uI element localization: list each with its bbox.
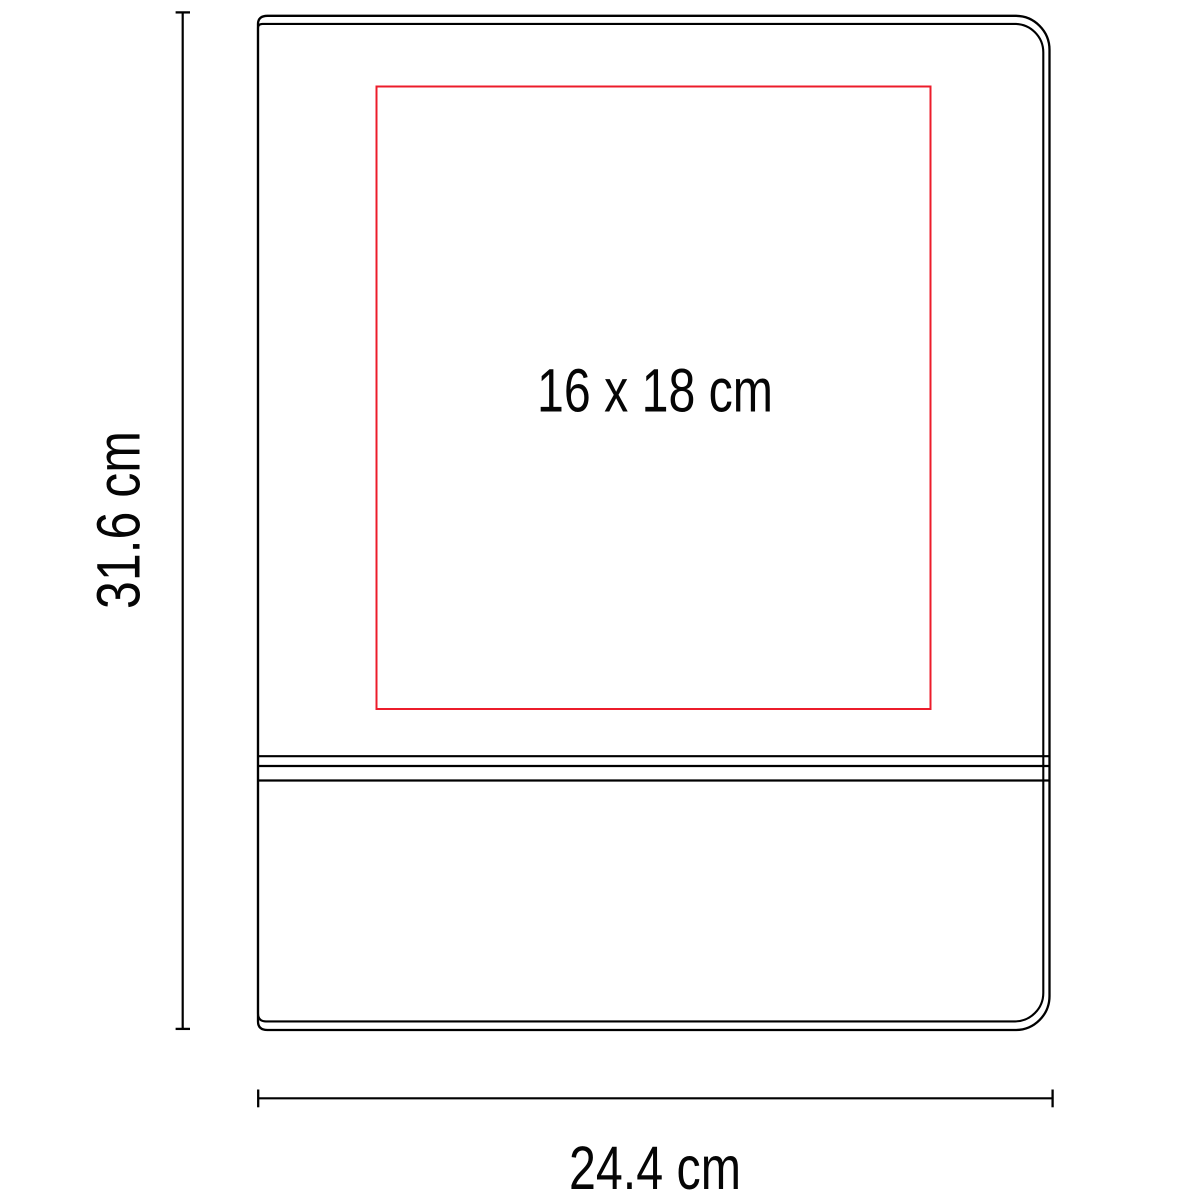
svg-text:24.4 cm: 24.4 cm xyxy=(569,1134,741,1200)
svg-text:31.6 cm: 31.6 cm xyxy=(85,431,153,609)
svg-text:16 x 18 cm: 16 x 18 cm xyxy=(537,357,773,425)
